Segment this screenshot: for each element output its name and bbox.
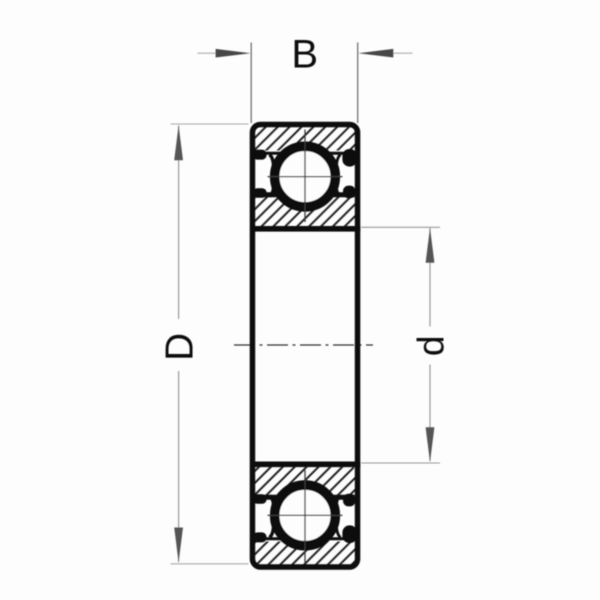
- svg-text:B: B: [291, 33, 318, 77]
- svg-text:d: d: [411, 336, 452, 357]
- svg-text:D: D: [159, 333, 202, 361]
